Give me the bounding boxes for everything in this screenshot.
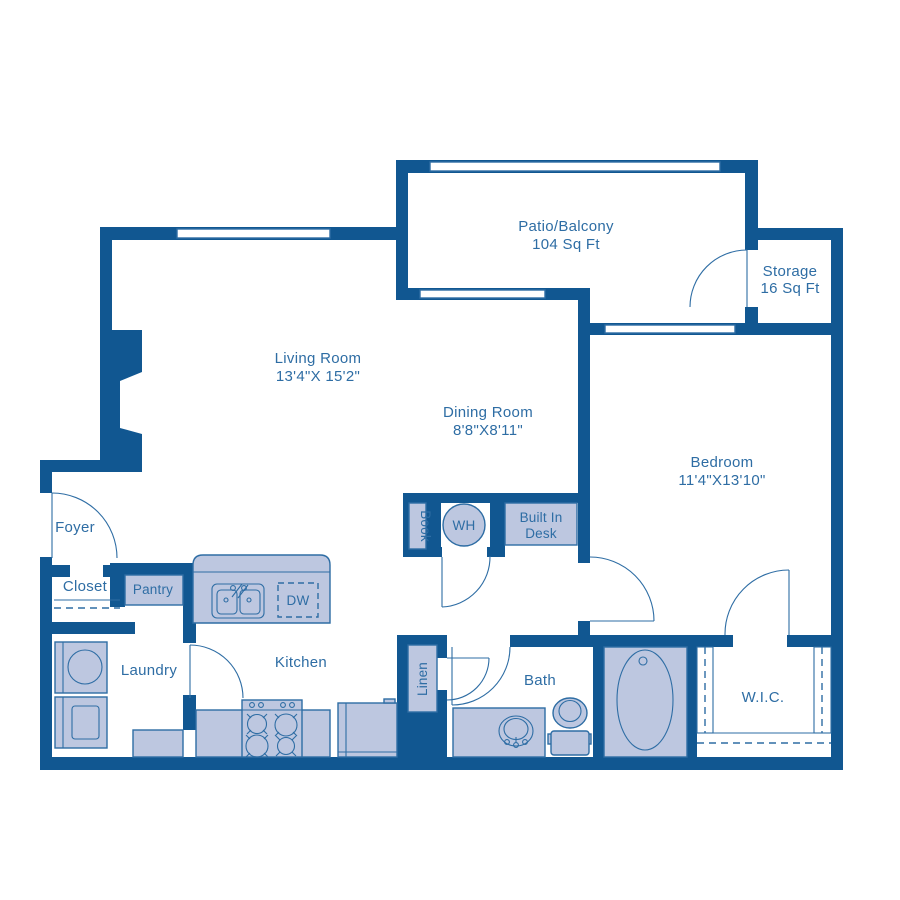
wall-segment <box>396 160 408 300</box>
bedroom-dimensions: 11'4"X13'10" <box>678 472 765 489</box>
storage-door <box>690 250 747 307</box>
wall-segment <box>437 645 447 658</box>
living-room-label: Living Room <box>275 350 362 367</box>
wall-segment <box>40 622 135 634</box>
patio-area: 104 Sq Ft <box>532 236 600 253</box>
wall-segment <box>687 647 697 757</box>
wall-segment <box>40 460 52 493</box>
wall-segment <box>397 712 447 757</box>
wall-segment <box>745 228 843 240</box>
wall-segment <box>437 690 447 712</box>
bedroom-door <box>590 557 654 621</box>
laundry-counter <box>133 730 183 757</box>
bath-label: Bath <box>524 672 556 689</box>
linen-label: Linen <box>415 662 430 696</box>
wall-segment <box>578 288 590 563</box>
wall-segment <box>487 547 500 557</box>
refrigerator <box>338 699 397 757</box>
book-shelf-label: Book <box>418 510 433 542</box>
kitchen-island <box>193 555 330 623</box>
bedroom-label: Bedroom <box>691 454 754 471</box>
wall-segment <box>510 635 733 647</box>
water-heater-label: WH <box>453 518 476 533</box>
wic-door <box>725 570 789 635</box>
wall-segment <box>593 647 604 757</box>
built-in-desk-label-line1: Built In <box>520 510 563 525</box>
wall-segment <box>183 695 196 730</box>
wic-label: W.I.C. <box>742 689 785 706</box>
window <box>177 229 330 238</box>
sliding-door <box>420 290 545 298</box>
wall-segment <box>52 565 70 577</box>
floorplan-svg: Patio/Balcony 104 Sq Ft Storage 16 Sq Ft… <box>0 0 900 900</box>
water-heater-door <box>442 556 490 607</box>
wall-segment <box>100 227 112 472</box>
kitchen-label: Kitchen <box>275 654 327 671</box>
bathtub <box>604 647 687 757</box>
washer <box>55 642 107 693</box>
dishwasher-label: DW <box>287 593 310 608</box>
floorplan-canvas: Patio/Balcony 104 Sq Ft Storage 16 Sq Ft… <box>0 0 900 900</box>
linen-door <box>447 658 489 700</box>
storage-label: Storage <box>763 263 818 280</box>
living-room-dimensions: 13'4"X 15'2" <box>276 368 360 385</box>
wall-segment <box>831 228 843 335</box>
window <box>605 325 735 333</box>
stove <box>242 700 302 757</box>
storage-area: 16 Sq Ft <box>760 280 820 297</box>
wall-segment <box>787 635 831 647</box>
pantry-label: Pantry <box>133 582 173 597</box>
foyer-label: Foyer <box>55 519 95 536</box>
wall-segment <box>42 460 142 472</box>
built-in-desk-label-line2: Desk <box>525 526 557 541</box>
bath-vanity <box>453 708 545 757</box>
toilet <box>548 698 591 755</box>
fireplace-bump <box>112 330 142 472</box>
window <box>430 162 720 171</box>
laundry-label: Laundry <box>121 662 178 679</box>
dining-room-dimensions: 8'8"X8'11" <box>453 422 523 439</box>
windows <box>177 162 735 333</box>
wall-segment <box>40 757 843 770</box>
wall-segment <box>40 557 52 770</box>
wall-segment <box>403 493 590 503</box>
bath-door <box>452 647 510 705</box>
dining-room-label: Dining Room <box>443 404 533 421</box>
kitchen-door <box>190 645 243 698</box>
patio-label: Patio/Balcony <box>518 218 614 235</box>
wall-segment <box>397 635 408 725</box>
wall-segment <box>831 323 843 770</box>
closet-label: Closet <box>63 578 108 595</box>
dryer <box>55 697 107 748</box>
